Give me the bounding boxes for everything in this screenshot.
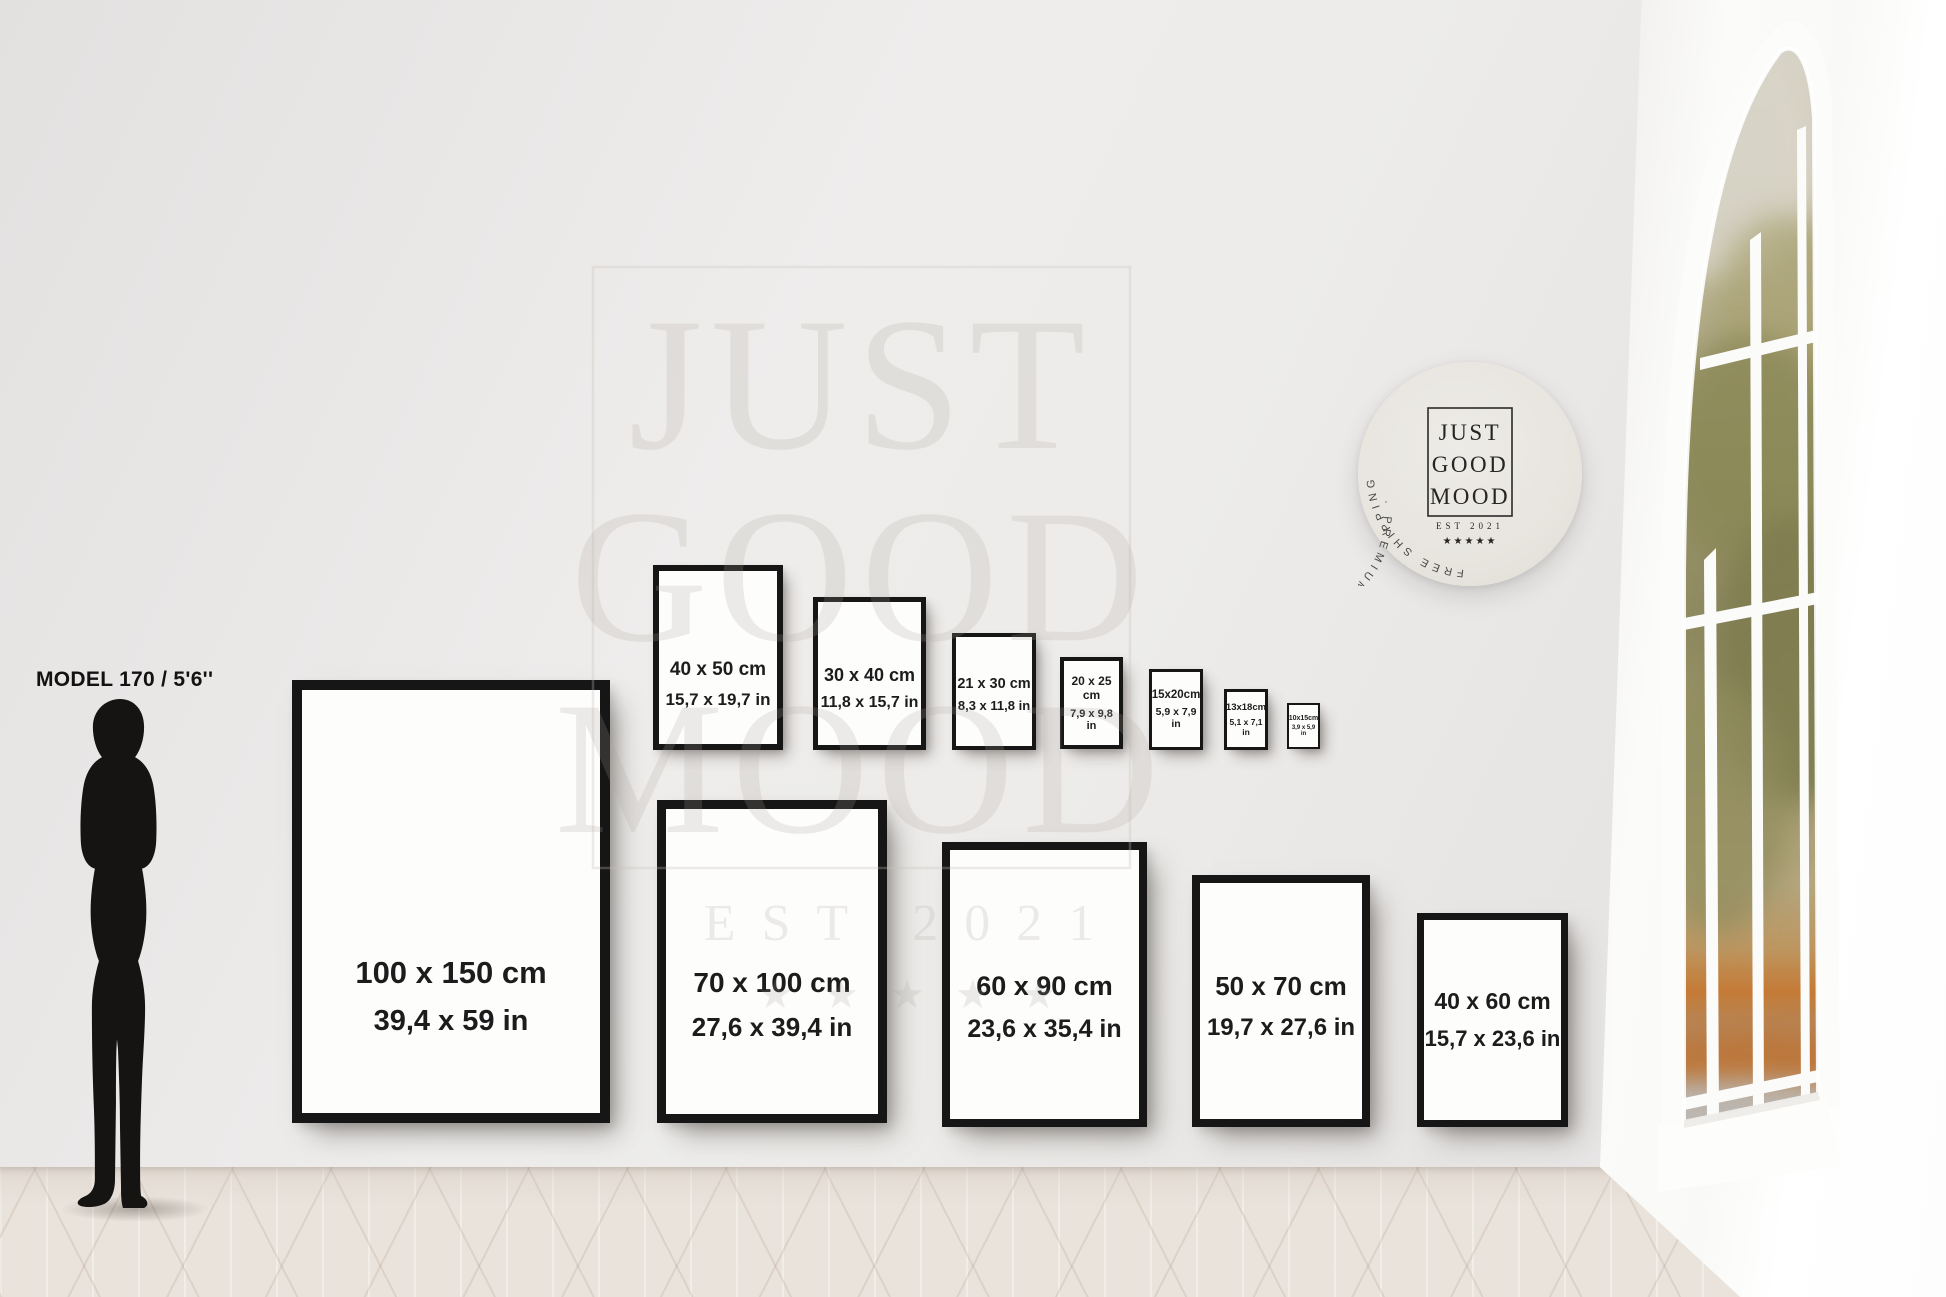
size-cm-label: 15x20cm — [1152, 689, 1201, 701]
size-frame-30x40: 30 x 40 cm 11,8 x 15,7 in — [813, 597, 926, 750]
size-frame-20x25: 20 x 25 cm 7,9 x 9,8 in — [1060, 657, 1123, 749]
size-cm-label: 70 x 100 cm — [693, 967, 850, 999]
badge-stars: ★★★★★ — [1443, 536, 1498, 547]
size-inch-label: 27,6 x 39,4 in — [692, 1012, 852, 1043]
size-frame-40x60: 40 x 60 cm 15,7 x 23,6 in — [1417, 913, 1568, 1127]
poster-size-guide-scene: MODEL 170 / 5'6'' 100 x 150 cm 39,4 x 59… — [0, 0, 1946, 1297]
size-cm-label: 50 x 70 cm — [1215, 971, 1347, 1002]
size-inch-label: 19,7 x 27,6 in — [1207, 1014, 1355, 1042]
size-cm-label: 30 x 40 cm — [824, 665, 915, 686]
size-inch-label: 7,9 x 9,8 in — [1064, 708, 1119, 732]
size-cm-label: 100 x 150 cm — [355, 955, 546, 991]
size-inch-label: 15,7 x 19,7 in — [666, 690, 771, 710]
size-cm-label: 20 x 25 cm — [1064, 674, 1119, 702]
size-inch-label: 8,3 x 11,8 in — [958, 698, 1030, 713]
size-cm-label: 40 x 60 cm — [1434, 988, 1550, 1015]
brand-badge: · PREMIUM POSTER · HIGH QUALITY · PRINTS… — [1358, 362, 1582, 586]
size-cm-label: 13x18cm — [1226, 702, 1266, 713]
size-cm-label: 21 x 30 cm — [957, 676, 1030, 692]
badge-est-label: EST 2021 — [1436, 521, 1504, 531]
size-frame-21x30: 21 x 30 cm 8,3 x 11,8 in — [952, 633, 1036, 750]
size-inch-label: 11,8 x 15,7 in — [821, 694, 919, 712]
badge-logo-mood: MOOD — [1430, 484, 1510, 509]
size-inch-label: 3,9 x 5,9 in — [1289, 725, 1318, 737]
size-frame-70x100: 70 x 100 cm 27,6 x 39,4 in — [657, 800, 887, 1123]
size-cm-label: 10x15cm — [1289, 715, 1319, 722]
size-inch-label: 15,7 x 23,6 in — [1425, 1026, 1561, 1052]
size-frame-100x150: 100 x 150 cm 39,4 x 59 in — [292, 680, 610, 1123]
size-inch-label: 5,1 x 7,1 in — [1227, 717, 1265, 737]
size-frame-13x18: 13x18cm 5,1 x 7,1 in — [1224, 689, 1268, 750]
woman-silhouette — [58, 696, 184, 1218]
size-cm-label: 40 x 50 cm — [670, 659, 766, 681]
size-cm-label: 60 x 90 cm — [976, 971, 1113, 1002]
size-frame-40x50: 40 x 50 cm 15,7 x 19,7 in — [653, 565, 783, 750]
arched-window — [1600, 0, 1946, 1297]
size-frame-50x70: 50 x 70 cm 19,7 x 27,6 in — [1192, 875, 1370, 1127]
badge-logo-just: JUST — [1439, 420, 1501, 445]
size-frame-60x90: 60 x 90 cm 23,6 x 35,4 in — [942, 842, 1147, 1127]
size-inch-label: 39,4 x 59 in — [374, 1005, 529, 1038]
badge-logo-good: GOOD — [1432, 452, 1508, 477]
size-inch-label: 23,6 x 35,4 in — [967, 1015, 1121, 1044]
model-height-label: MODEL 170 / 5'6'' — [36, 668, 213, 692]
size-inch-label: 5,9 x 7,9 in — [1152, 706, 1200, 730]
size-frame-10x15: 10x15cm 3,9 x 5,9 in — [1287, 703, 1320, 749]
size-frame-15x20: 15x20cm 5,9 x 7,9 in — [1149, 669, 1203, 750]
